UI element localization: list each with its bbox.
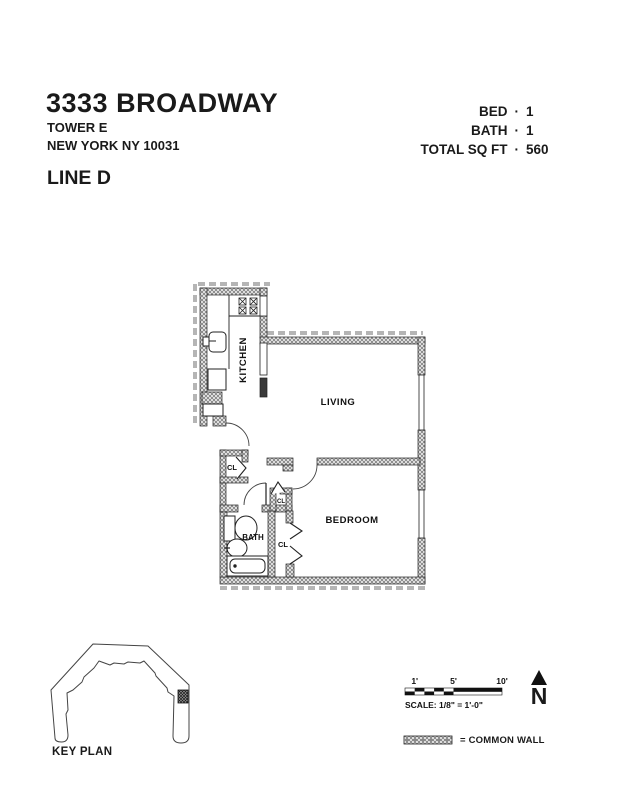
bath-fixtures <box>224 516 268 576</box>
stat-label: TOTAL SQ FT <box>421 140 508 159</box>
unit-line-label: LINE D <box>47 167 111 190</box>
scale-caption: SCALE: 1/8" = 1'-0" <box>405 700 483 710</box>
north-label: N <box>522 685 556 708</box>
stat-value: 1 <box>526 102 558 121</box>
city-line: NEW YORK NY 10031 <box>47 138 179 153</box>
stat-bed: BED · 1 <box>421 102 559 121</box>
stat-label: BED <box>479 102 508 121</box>
bath-label: BATH <box>242 533 264 542</box>
stat-label: BATH <box>471 121 508 140</box>
cabinet <box>203 404 223 416</box>
wall-segment <box>260 378 267 397</box>
floorplan-sheet: 3333 BROADWAY TOWER E NEW YORK NY 10031 … <box>0 0 618 800</box>
building-title: 3333 BROADWAY <box>46 88 278 119</box>
bifold-door <box>290 523 302 539</box>
refrigerator <box>208 369 226 390</box>
tower-line: TOWER E <box>47 120 107 135</box>
scale-tick-10: 10' <box>496 676 507 686</box>
scale-tick-5: 5' <box>450 676 457 686</box>
stat-value: 1 <box>526 121 558 140</box>
common-wall-legend: = COMMON WALL <box>403 734 545 746</box>
toilet-tank <box>224 516 235 541</box>
unit-location-marker <box>178 690 188 703</box>
hall-closet-label: CL <box>227 463 237 472</box>
stat-separator: · <box>515 140 520 159</box>
scale-tick-1: 1' <box>411 676 418 686</box>
unit-stats: BED · 1 BATH · 1 TOTAL SQ FT · 560 <box>421 102 559 159</box>
scale-bar-blocks <box>405 688 502 695</box>
common-wall-swatch-icon <box>403 734 453 746</box>
sink-tap <box>203 337 209 346</box>
living-label: LIVING <box>321 397 356 408</box>
bifold-door <box>290 546 302 564</box>
bath-door-arc <box>244 483 266 505</box>
stat-separator: · <box>515 102 520 121</box>
sink <box>209 332 226 352</box>
entry-closet-label: CL <box>277 499 285 505</box>
stove-burners <box>239 298 257 314</box>
stat-separator: · <box>515 121 520 140</box>
stat-value: 560 <box>526 140 558 159</box>
floorplan-drawing: KITCHEN LIVING BEDROOM BATH CL CL CL <box>190 280 440 592</box>
stat-bath: BATH · 1 <box>421 121 559 140</box>
key-plan-label: KEY PLAN <box>52 746 112 758</box>
bedroom-door-arc <box>293 465 317 489</box>
bedroom-label: BEDROOM <box>325 515 378 526</box>
legend-text: = COMMON WALL <box>460 735 545 746</box>
kitchen-label: KITCHEN <box>238 337 249 383</box>
building-outline <box>51 644 189 743</box>
stat-sqft: TOTAL SQ FT · 560 <box>421 140 559 159</box>
bathtub-drain <box>234 565 236 567</box>
north-arrow: N <box>522 670 556 708</box>
bedroom-closet-label: CL <box>278 540 288 549</box>
kitchen-door-arc <box>226 423 249 446</box>
